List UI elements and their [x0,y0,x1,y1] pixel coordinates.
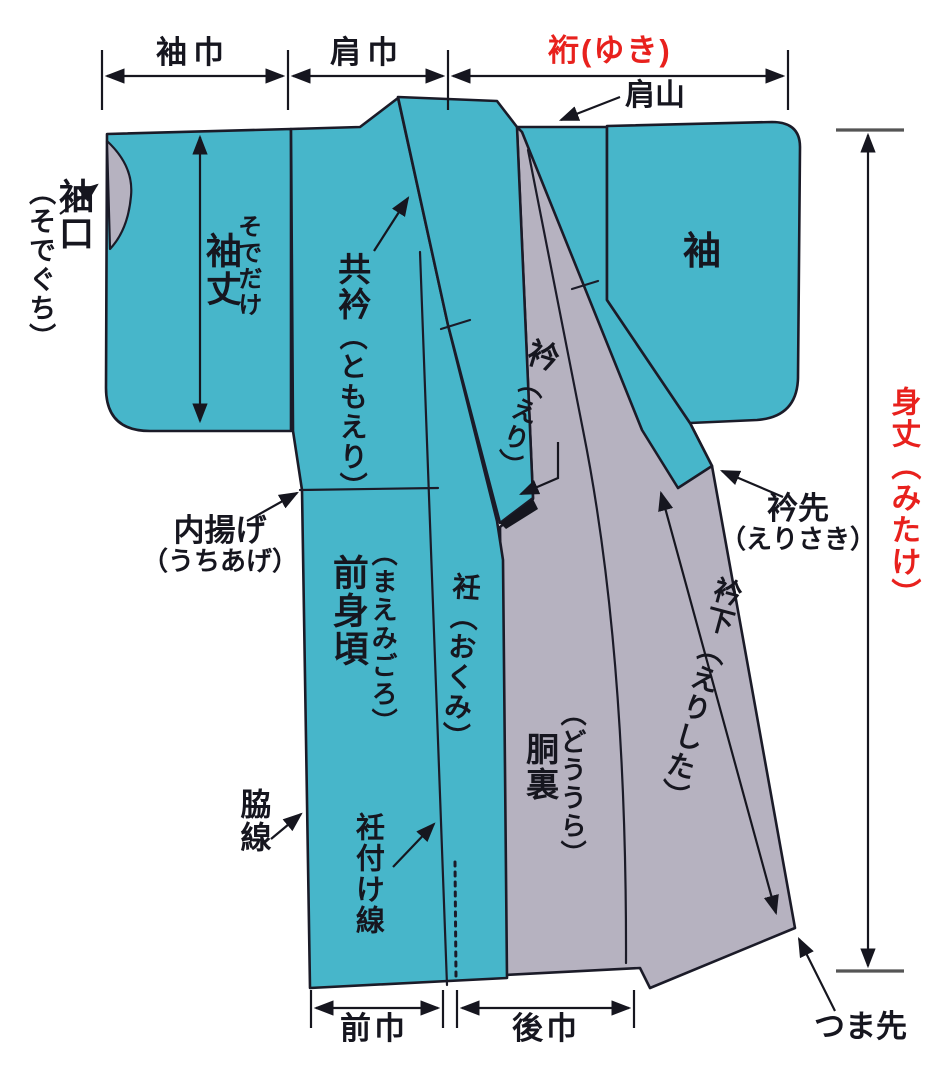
waki-sen-leader [271,814,301,839]
kimono-diagram: 袖巾 肩巾 裄(ゆき) 肩山 袖口（そでぐち） そでだけ 袖丈 共衿（ともえり）… [0,0,950,1080]
yuki-label: 裄(ゆき) [548,34,672,67]
uchi-age-reading: （うちあげ） [120,547,320,575]
tsuma-saki-leader [799,939,835,1011]
do-ura-label: 胴裏 [522,732,558,802]
okumi-tsuke-label: 衽付け線 [351,812,382,936]
kata-haba-label: 肩巾 [330,36,404,69]
tomo-eri-main: 共衿 [334,252,371,322]
eri-saki-main: 衿先 [700,492,896,525]
mae-migoro-reading: （まえみごろ） [369,540,397,736]
sode-guchi-label: 袖口（そでぐち） [25,178,92,352]
mitake-label: 身丈（みたけ） [886,386,918,610]
tomo-eri-label: 共衿（ともえり） [334,252,370,502]
sode-guchi-main: 袖口 [54,178,92,352]
sode-label: 袖 [683,232,721,273]
left-sleeve-shape [106,129,291,431]
tsuma-saki-label: つま先 [814,1010,907,1043]
do-ura-reading: （どううら） [558,700,586,868]
kata-yama-label: 肩山 [625,80,685,112]
eri-saki-label: 衿先 （えりさき） [700,492,896,554]
waki-sen-label: 脇線 [236,788,269,854]
mae-migoro-label: 前身頃 [328,554,367,668]
sode-guchi-reading: （そでぐち） [25,178,55,352]
uchi-age-label: 内揚げ （うちあげ） [120,514,320,576]
ushiro-haba-label: 後巾 [512,1012,580,1045]
sode-take-label: 袖丈 [201,232,240,308]
eri-saki-reading: （えりさき） [700,525,896,553]
mae-haba-label: 前巾 [340,1012,408,1045]
uchi-age-main: 内揚げ [120,514,320,547]
kata-yama-leader [561,97,620,120]
sode-haba-label: 袖巾 [156,36,230,69]
tomo-eri-reading: （ともえり） [337,322,368,502]
